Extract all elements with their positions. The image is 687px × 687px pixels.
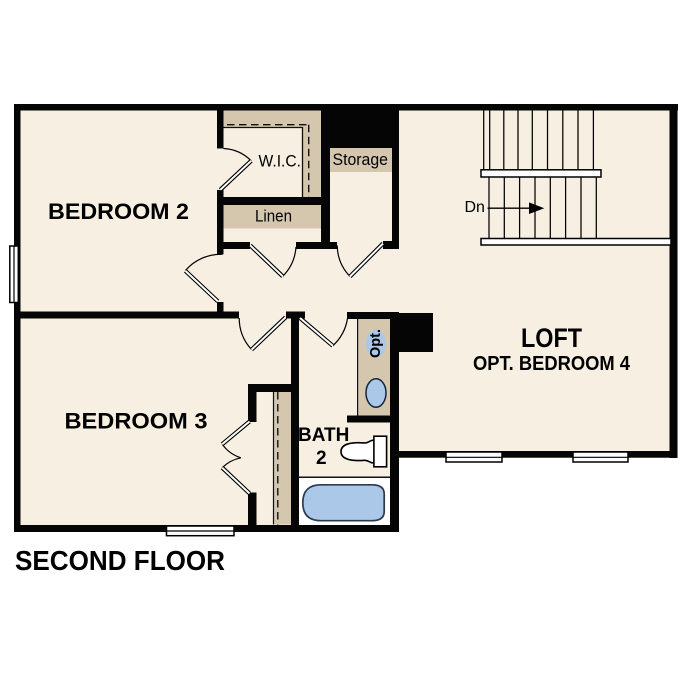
svg-text:OPT. BEDROOM 4: OPT. BEDROOM 4 [473, 353, 631, 375]
svg-text:BEDROOM 3: BEDROOM 3 [65, 409, 208, 434]
svg-text:BEDROOM 2: BEDROOM 2 [48, 199, 189, 224]
svg-text:W.I.C.: W.I.C. [259, 153, 302, 171]
svg-text:2: 2 [316, 448, 327, 469]
svg-text:Dn: Dn [465, 199, 485, 216]
svg-text:Storage: Storage [333, 151, 389, 169]
svg-text:LOFT: LOFT [521, 323, 582, 353]
svg-text:BATH: BATH [298, 425, 349, 446]
svg-text:Linen: Linen [255, 208, 292, 226]
svg-text:SECOND FLOOR: SECOND FLOOR [15, 545, 225, 576]
svg-text:Opt.: Opt. [368, 329, 384, 358]
